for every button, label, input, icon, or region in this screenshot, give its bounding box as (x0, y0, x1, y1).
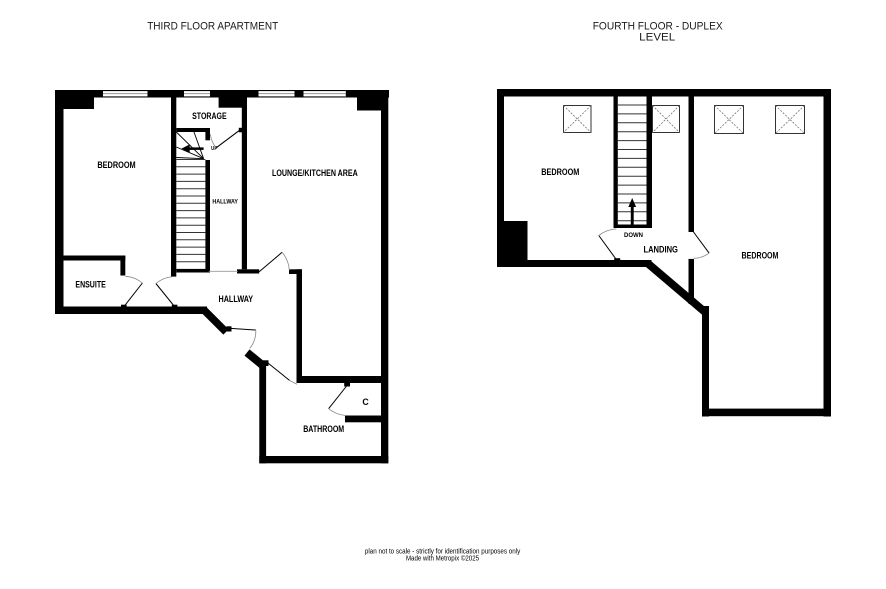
svg-text:ENSUITE: ENSUITE (75, 279, 105, 289)
svg-text:LANDING: LANDING (643, 244, 678, 254)
svg-text:THIRD FLOOR APARTMENT: THIRD FLOOR APARTMENT (147, 21, 278, 33)
svg-text:Made with Metropix ©2025: Made with Metropix ©2025 (406, 553, 479, 562)
svg-text:BEDROOM: BEDROOM (742, 250, 779, 260)
svg-text:C: C (362, 397, 369, 407)
svg-text:HALLWAY: HALLWAY (212, 198, 238, 205)
svg-text:HALLWAY: HALLWAY (219, 294, 254, 304)
svg-text:BEDROOM: BEDROOM (97, 160, 135, 170)
svg-text:BEDROOM: BEDROOM (541, 167, 579, 177)
svg-text:LOUNGE/KITCHEN AREA: LOUNGE/KITCHEN AREA (272, 168, 358, 178)
svg-text:DOWN: DOWN (624, 233, 643, 239)
svg-text:STORAGE: STORAGE (192, 111, 227, 121)
svg-text:BATHROOM: BATHROOM (303, 424, 344, 434)
svg-text:LEVEL: LEVEL (639, 32, 675, 44)
